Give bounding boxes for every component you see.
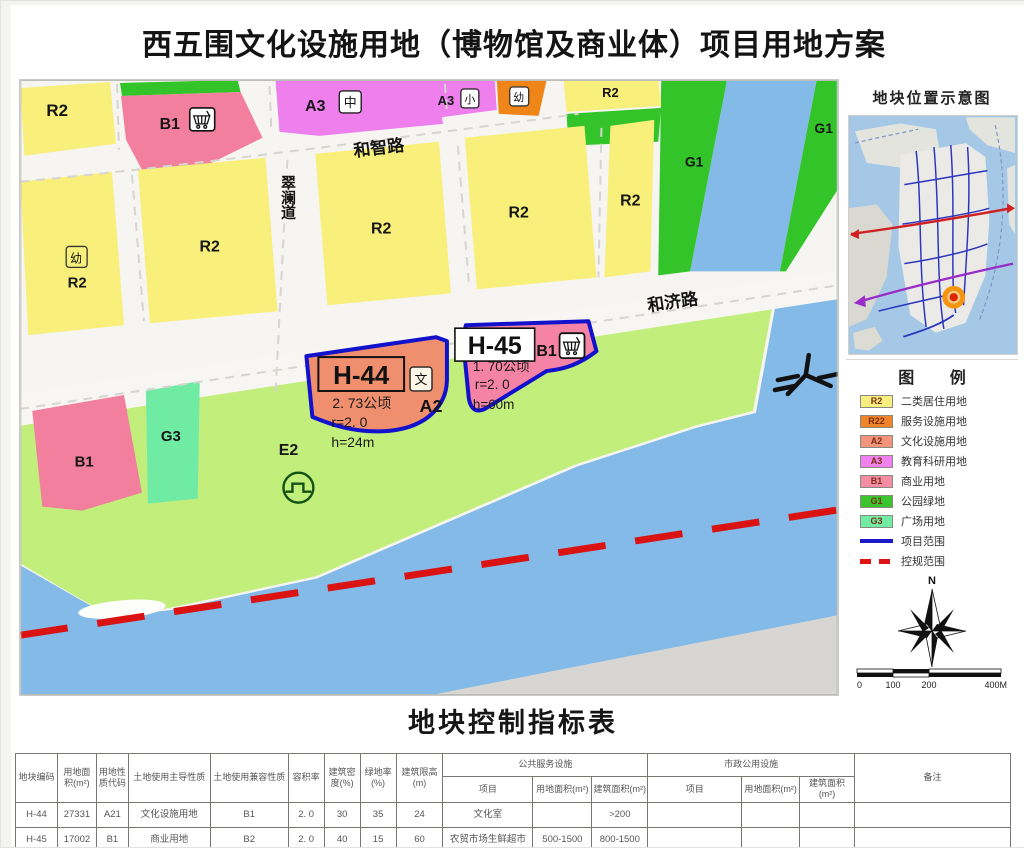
- legend-label: 文化设施用地: [901, 433, 967, 449]
- location-map-svg: [849, 116, 1015, 352]
- legend-item-a2: A2 文化设施用地: [860, 431, 1010, 451]
- cell-far: 2. 0: [288, 827, 324, 848]
- legend-item-b1: B1 商业用地: [860, 471, 1010, 491]
- legend-item-r2: R2 二类居住用地: [860, 391, 1010, 411]
- cell-ps-land: 500-1500: [533, 827, 592, 848]
- cell-plot-code: H-45: [16, 827, 58, 848]
- legend-item-control-boundary: 控规范围: [860, 551, 1010, 571]
- zone-label-g1-right: G1: [814, 120, 833, 136]
- plot-h45-area: 1. 70公顷: [473, 359, 530, 374]
- cell-mu-floor: [800, 802, 855, 827]
- cell-ps-land: [533, 802, 592, 827]
- scale-tick-200: 200: [921, 680, 936, 690]
- cell-density: 30: [324, 802, 360, 827]
- zone-label-b1-top: B1: [160, 116, 181, 133]
- legend: R2 二类居住用地 R22 服务设施用地 A2 文化设施用地 A3 教育科研用地…: [860, 391, 1010, 571]
- cell-plot-code: H-44: [16, 802, 58, 827]
- land-use-map-svg: R2 B1 A3 A3 R2 G1 G1 R2 R2 R2 R2 R2 B1 G…: [20, 80, 838, 695]
- badge-wen: 文: [415, 372, 428, 387]
- badge-xiao: 小: [464, 93, 475, 106]
- zone-label-r2-top-left: R2: [46, 101, 68, 120]
- plot-control-table: 地块编码 用地面积(m²) 用地性质代码 土地使用主导性质 土地使用兼容性质 容…: [15, 753, 1011, 848]
- col-nature-code: 用地性质代码: [96, 754, 128, 803]
- legend-swatch-b1: B1: [860, 475, 893, 488]
- r2-row-d-block: [465, 126, 597, 289]
- zone-label-g1-band: G1: [685, 154, 704, 170]
- zone-label-r2-row-c: R2: [371, 221, 392, 238]
- col-mu-land: 用地面积(m²): [742, 777, 800, 803]
- legend-swatch-r22: R22: [860, 415, 893, 428]
- scale-bar: 0 100 200 400M: [856, 667, 1008, 693]
- legend-item-a3: A3 教育科研用地: [860, 451, 1010, 471]
- col-land-area: 用地面积(m²): [57, 754, 96, 803]
- legend-item-g1: G1 公园绿地: [860, 491, 1010, 511]
- scale-tick-400: 400M: [984, 680, 1007, 690]
- cell-density: 40: [324, 827, 360, 848]
- cell-ps-floor: >200: [592, 802, 648, 827]
- legend-label: 项目范围: [901, 533, 945, 549]
- cell-ps-item: 文化室: [443, 802, 533, 827]
- zone-label-r2-row-b: R2: [200, 238, 221, 255]
- plot-h44-id: H-44: [333, 362, 390, 390]
- plot-h45-code: B1: [536, 343, 557, 360]
- zone-label-r2-row-a: R2: [68, 274, 87, 291]
- cell-remark: [855, 802, 1011, 827]
- cell-mu-land: [742, 827, 800, 848]
- cell-mu-item: [648, 802, 742, 827]
- col-mu-item: 项目: [648, 777, 742, 803]
- cell-remark: [855, 827, 1011, 848]
- zone-label-g3: G3: [161, 428, 181, 445]
- plot-h45-id: H-45: [468, 332, 522, 360]
- badge-you-left: 幼: [70, 251, 82, 265]
- legend-item-g3: G3 广场用地: [860, 511, 1010, 531]
- table-header-row-1: 地块编码 用地面积(m²) 用地性质代码 土地使用主导性质 土地使用兼容性质 容…: [16, 754, 1011, 777]
- page-title: 西五围文化设施用地（博物馆及商业体）项目用地方案: [142, 20, 886, 64]
- cell-primary-use: 文化设施用地: [128, 802, 210, 827]
- legend-title: 图 例: [846, 359, 1018, 388]
- col-plot-code: 地块编码: [16, 754, 58, 803]
- cart-icon: [190, 108, 215, 131]
- col-group-public: 公共服务设施: [443, 754, 648, 777]
- compass-svg: [892, 579, 972, 671]
- table-row-h45: H-45 17002 B1 商业用地 B2 2. 0 40 15 60 农贸市场…: [16, 827, 1011, 848]
- zone-label-a3-mid: A3: [305, 98, 326, 115]
- plot-h44-height: h=24m: [331, 434, 374, 450]
- col-mu-floor: 建筑面积(m²): [800, 777, 855, 803]
- scale-tick-0: 0: [857, 680, 862, 690]
- table-title: 地块控制指标表: [1, 701, 1024, 740]
- col-ps-floor: 建筑面积(m²): [592, 777, 648, 803]
- legend-swatch-r2: R2: [860, 395, 893, 408]
- legend-line-control: [860, 559, 893, 564]
- cell-primary-use: 商业用地: [128, 827, 210, 848]
- col-compatible-use: 土地使用兼容性质: [210, 754, 288, 803]
- zone-label-r2-row-e: R2: [620, 193, 641, 210]
- cell-ps-item: 农贸市场生鲜超市: [443, 827, 533, 848]
- legend-label: 公园绿地: [901, 493, 945, 509]
- zone-label-b1-low: B1: [75, 454, 94, 471]
- cell-mu-item: [648, 827, 742, 848]
- col-primary-use: 土地使用主导性质: [128, 754, 210, 803]
- location-map-title: 地块位置示意图: [846, 79, 1018, 108]
- zone-label-e2: E2: [279, 442, 299, 459]
- scale-tick-100: 100: [885, 680, 900, 690]
- plot-h45-far: r=2. 0: [475, 377, 510, 392]
- cell-mu-land: [742, 802, 800, 827]
- cell-nature-code: B1: [96, 827, 128, 848]
- legend-label: 教育科研用地: [901, 453, 967, 469]
- site-marker: [942, 286, 965, 309]
- legend-item-project-boundary: 项目范围: [860, 531, 1010, 551]
- cell-compatible-use: B1: [210, 802, 288, 827]
- badge-zhong: 中: [344, 95, 357, 110]
- legend-swatch-a3: A3: [860, 455, 893, 468]
- col-ps-land: 用地面积(m²): [533, 777, 592, 803]
- plot-h45-height: h=60m: [473, 397, 514, 412]
- legend-label: 控规范围: [901, 553, 945, 569]
- r2-top-left-block: [20, 82, 116, 156]
- cell-height-limit: 60: [396, 827, 443, 848]
- cell-land-area: 17002: [57, 827, 96, 848]
- col-density: 建筑密度(%): [324, 754, 360, 803]
- plot-h44-far: r=2. 0: [331, 414, 367, 430]
- legend-swatch-g1: G1: [860, 495, 893, 508]
- zone-label-a3-small: A3: [438, 93, 455, 108]
- plot-h44-code: A2: [420, 396, 443, 416]
- col-remark: 备注: [855, 754, 1011, 803]
- location-map: [848, 115, 1018, 355]
- zone-label-r2-row-d: R2: [509, 205, 530, 222]
- legend-item-r22: R22 服务设施用地: [860, 411, 1010, 431]
- cell-land-area: 27331: [57, 802, 96, 827]
- legend-swatch-g3: G3: [860, 515, 893, 528]
- cell-green-rate: 35: [360, 802, 396, 827]
- col-group-municipal: 市政公用设施: [648, 754, 855, 777]
- cell-height-limit: 24: [396, 802, 443, 827]
- cell-nature-code: A21: [96, 802, 128, 827]
- col-far: 容积率: [288, 754, 324, 803]
- cart-icon: [560, 333, 585, 358]
- col-green-rate: 绿地率(%): [360, 754, 396, 803]
- col-height-limit: 建筑限高(m): [396, 754, 443, 803]
- scale-bar-svg: 0 100 200 400M: [856, 667, 1008, 693]
- cell-green-rate: 15: [360, 827, 396, 848]
- legend-swatch-a2: A2: [860, 435, 893, 448]
- legend-label: 二类居住用地: [901, 393, 967, 409]
- table-row-h44: H-44 27331 A21 文化设施用地 B1 2. 0 30 35 24 文…: [16, 802, 1011, 827]
- legend-label: 服务设施用地: [901, 413, 967, 429]
- road-label-cuilan: 翠澜道: [279, 175, 296, 220]
- sidebar: 地块位置示意图: [846, 79, 1018, 696]
- legend-label: 广场用地: [901, 513, 945, 529]
- north-label: N: [928, 575, 936, 587]
- cell-mu-floor: [800, 827, 855, 848]
- zone-label-r2-top: R2: [602, 85, 619, 100]
- plot-h44-area: 2. 73公顷: [332, 395, 391, 411]
- legend-label: 商业用地: [901, 473, 945, 489]
- badge-you-top: 幼: [513, 91, 524, 104]
- cell-far: 2. 0: [288, 802, 324, 827]
- plan-sheet: 西五围文化设施用地（博物馆及商业体）项目用地方案: [0, 0, 1024, 848]
- cell-ps-floor: 800-1500: [592, 827, 648, 848]
- title-bar: 西五围文化设施用地（博物馆及商业体）项目用地方案: [19, 13, 1009, 71]
- land-use-map: R2 B1 A3 A3 R2 G1 G1 R2 R2 R2 R2 R2 B1 G…: [19, 79, 839, 696]
- compass-rose: N: [892, 579, 972, 671]
- col-ps-item: 项目: [443, 777, 533, 803]
- legend-line-project: [860, 539, 893, 543]
- cell-compatible-use: B2: [210, 827, 288, 848]
